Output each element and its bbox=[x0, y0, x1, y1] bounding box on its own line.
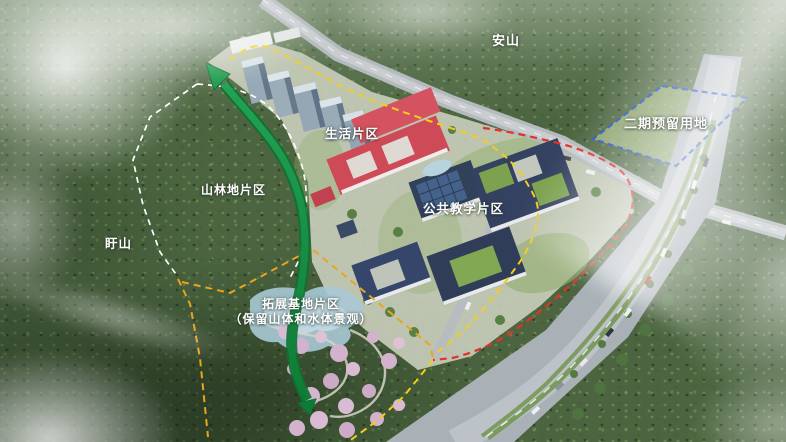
plan-svg bbox=[0, 0, 786, 442]
aerial-masterplan-view: 安山 盱山 二期预留用地 生活片区 山林地片区 公共教学片区 拓展基地片区 （保… bbox=[0, 0, 786, 442]
